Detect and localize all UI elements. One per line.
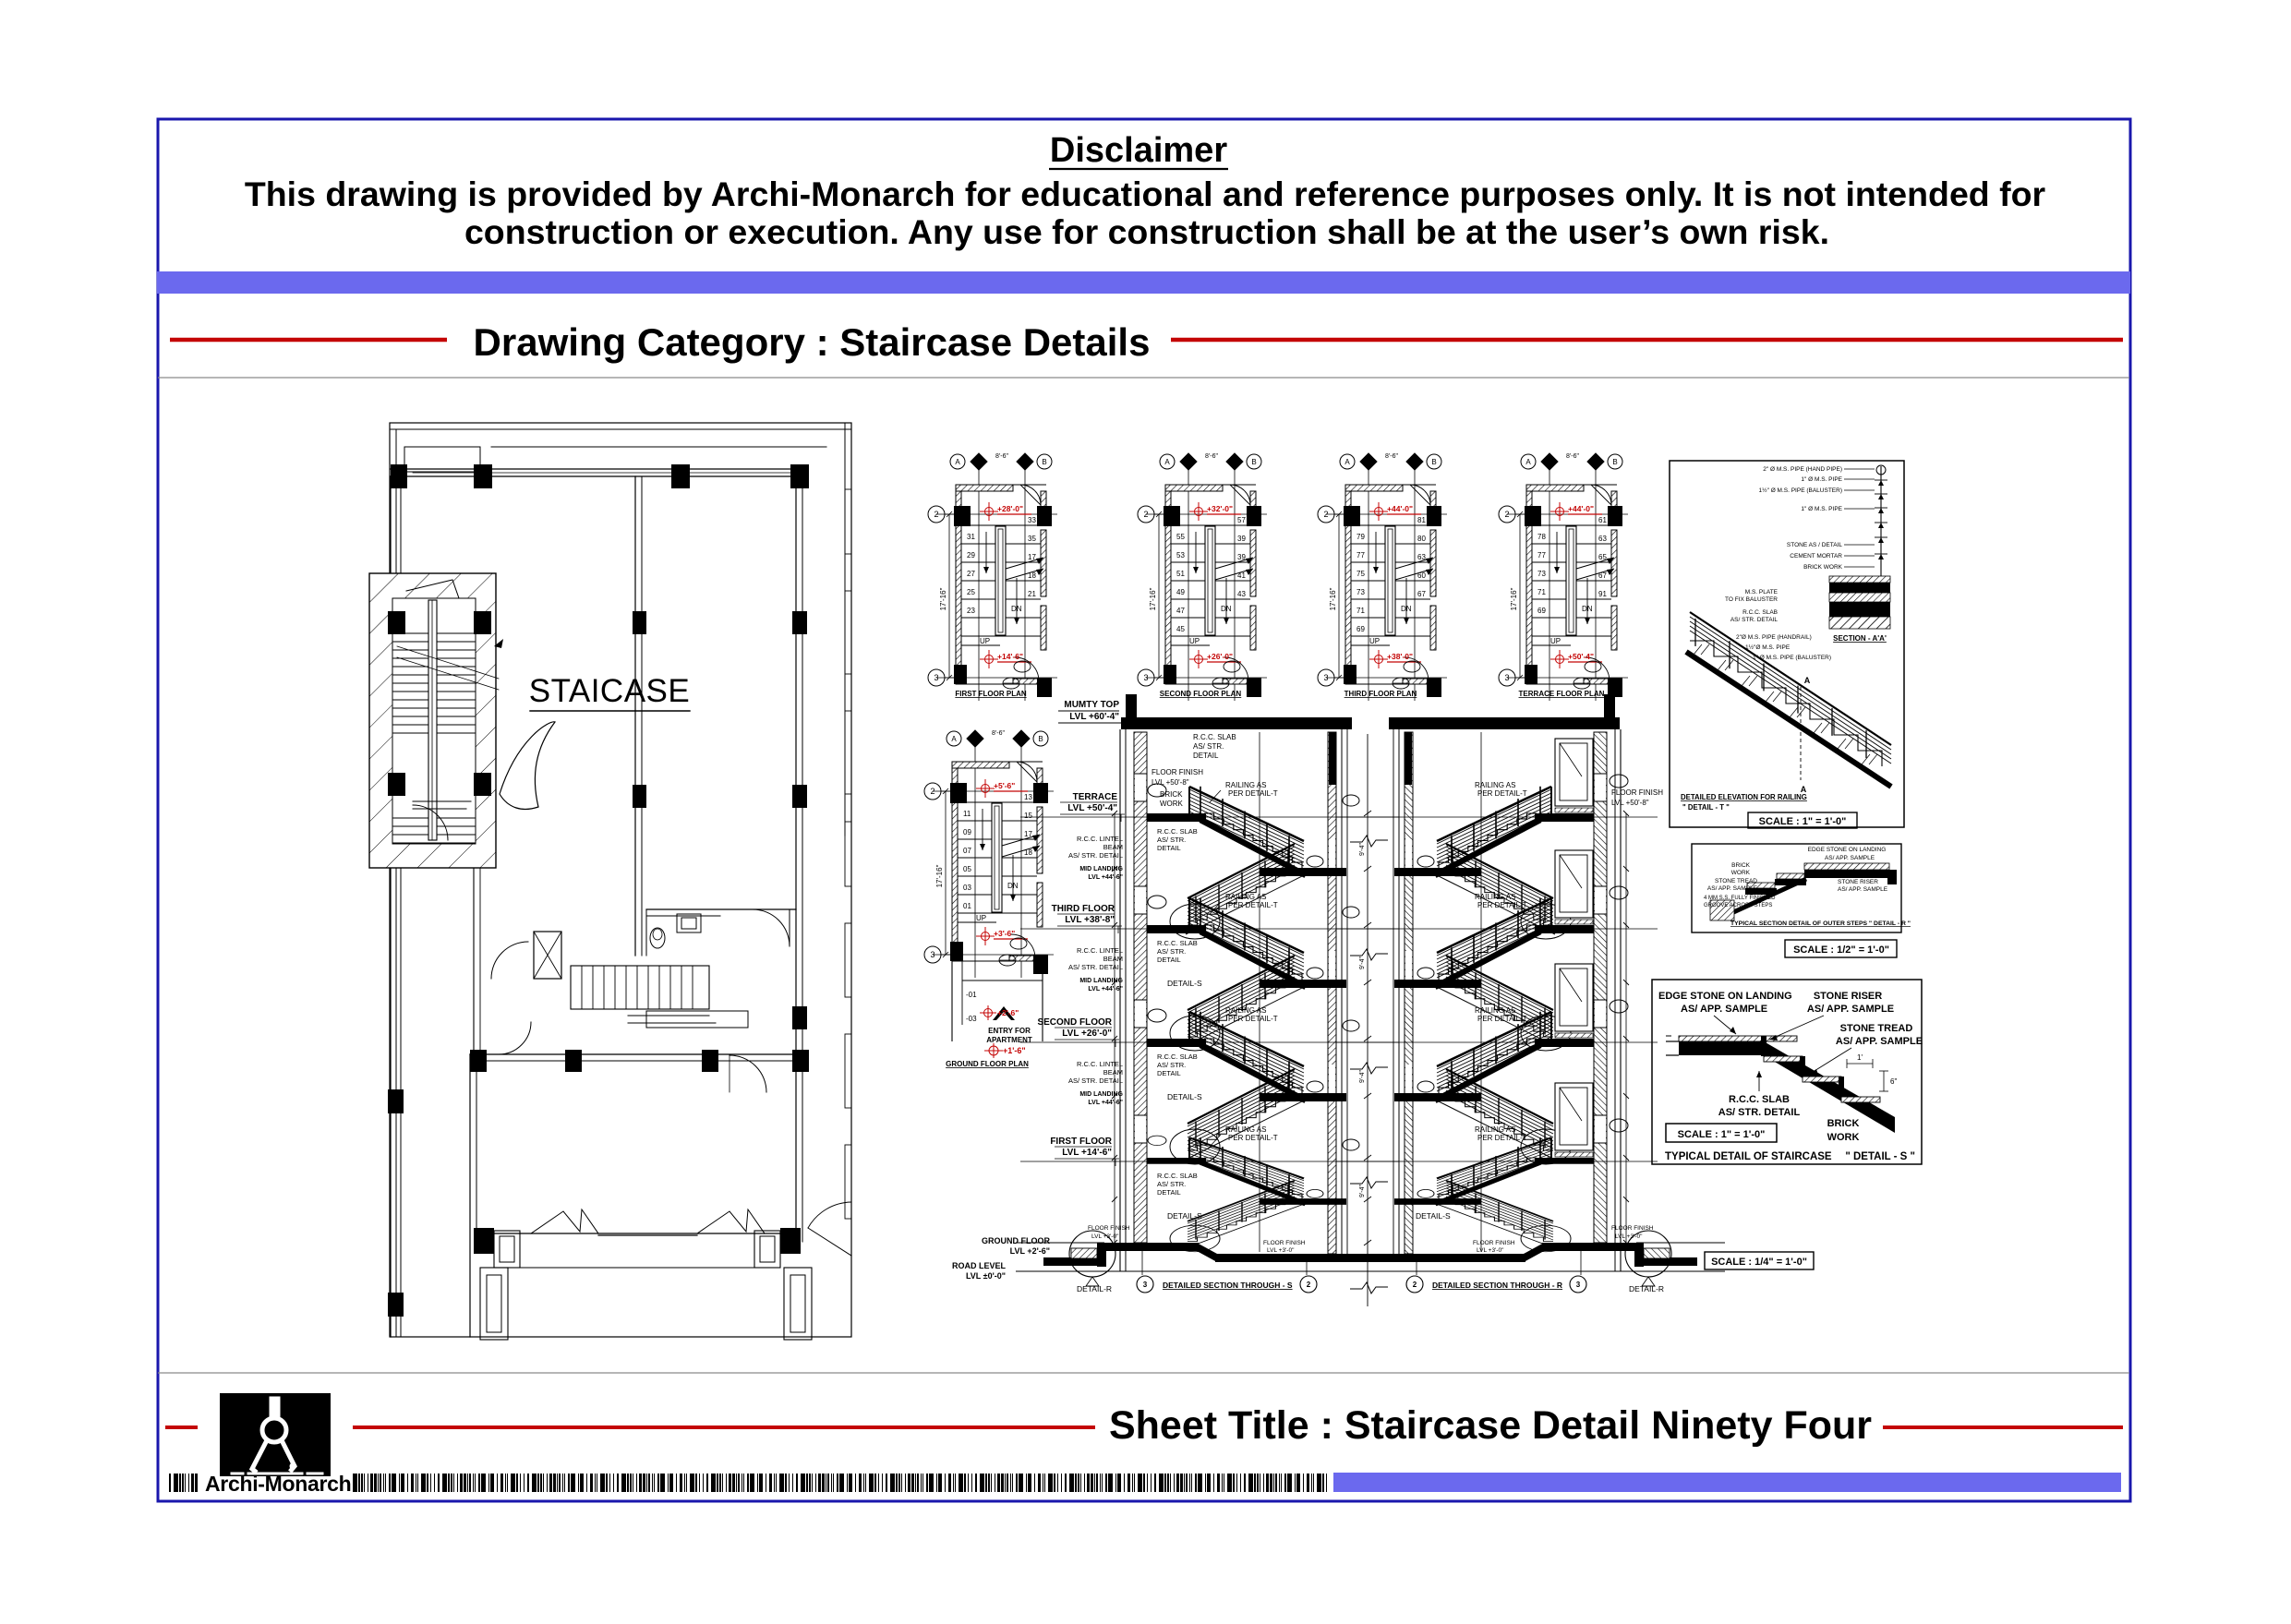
svg-text:LVL +44'-6": LVL +44'-6" bbox=[1088, 1100, 1123, 1106]
svg-text:MID LANDING: MID LANDING bbox=[1079, 978, 1123, 984]
svg-text:4 MM S.S. FULLY FINISHED: 4 MM S.S. FULLY FINISHED bbox=[1704, 896, 1776, 901]
svg-text:-03: -03 bbox=[966, 1015, 977, 1023]
svg-text:BRICK: BRICK bbox=[1827, 1118, 1860, 1129]
svg-text:01: 01 bbox=[963, 902, 971, 910]
svg-text:1½" Ø M.S. PIPE (BALUSTER): 1½" Ø M.S. PIPE (BALUSTER) bbox=[1759, 487, 1842, 494]
svg-text:R.C.C. SLAB: R.C.C. SLAB bbox=[1157, 827, 1198, 836]
svg-text:R.C.C. LINTEL: R.C.C. LINTEL bbox=[1077, 946, 1123, 955]
svg-text:8'-6": 8'-6" bbox=[995, 453, 1008, 460]
svg-text:60: 60 bbox=[1417, 571, 1426, 580]
svg-text:" DETAIL - S ": " DETAIL - S " bbox=[1845, 1151, 1915, 1162]
svg-text:2: 2 bbox=[1413, 1281, 1417, 1289]
svg-text:UP: UP bbox=[1189, 637, 1200, 645]
svg-text:GROUND FLOOR: GROUND FLOOR bbox=[982, 1236, 1050, 1245]
svg-text:LVL +50'-8": LVL +50'-8" bbox=[1611, 799, 1649, 807]
svg-text:2: 2 bbox=[934, 510, 938, 519]
svg-text:ROAD LEVEL: ROAD LEVEL bbox=[952, 1261, 1007, 1270]
svg-text:Archi-Monarch: Archi-Monarch bbox=[205, 1472, 351, 1496]
svg-text:DN: DN bbox=[1221, 605, 1232, 613]
svg-text:AS/ STR.: AS/ STR. bbox=[1157, 836, 1186, 844]
svg-text:R.C.C. SLAB: R.C.C. SLAB bbox=[1157, 939, 1198, 947]
svg-text:63: 63 bbox=[1598, 535, 1607, 543]
svg-text:RAILING AS: RAILING AS bbox=[1475, 781, 1515, 789]
svg-text:Drawing Category : Staircase D: Drawing Category : Staircase Details bbox=[474, 320, 1151, 364]
svg-text:SECOND FLOOR: SECOND FLOOR bbox=[1037, 1017, 1112, 1028]
svg-text:73: 73 bbox=[1357, 588, 1365, 596]
svg-text:39: 39 bbox=[1237, 553, 1246, 561]
svg-text:SECOND FLOOR PLAN: SECOND FLOOR PLAN bbox=[1160, 690, 1242, 698]
svg-text:A: A bbox=[955, 458, 960, 466]
svg-text:+14'-6": +14'-6" bbox=[997, 652, 1023, 661]
svg-text:LVL +3'-0": LVL +3'-0" bbox=[1091, 1233, 1119, 1240]
svg-text:17'-16": 17'-16" bbox=[939, 587, 947, 610]
svg-text:1': 1' bbox=[1857, 1053, 1863, 1062]
svg-text:MID LANDING: MID LANDING bbox=[1079, 866, 1123, 872]
svg-text:PER DETAIL-T: PER DETAIL-T bbox=[1477, 789, 1527, 798]
svg-text:PER DETAIL-T: PER DETAIL-T bbox=[1228, 1015, 1278, 1023]
svg-text:1½"Ø M.S. PIPE: 1½"Ø M.S. PIPE bbox=[1745, 644, 1791, 651]
svg-text:+5'-6": +5'-6" bbox=[994, 781, 1015, 790]
svg-text:RAILING AS: RAILING AS bbox=[1225, 1006, 1266, 1015]
svg-text:51: 51 bbox=[1176, 570, 1185, 578]
svg-text:A: A bbox=[1164, 458, 1170, 466]
svg-text:FLOOR FINISH: FLOOR FINISH bbox=[1088, 1225, 1130, 1232]
svg-text:2: 2 bbox=[1143, 510, 1148, 519]
svg-text:+32'-0": +32'-0" bbox=[1207, 504, 1233, 513]
svg-text:+2'-6": +2'-6" bbox=[997, 1008, 1019, 1017]
svg-text:69: 69 bbox=[1537, 607, 1546, 615]
svg-text:AS/ STR. DETAIL: AS/ STR. DETAIL bbox=[1068, 1077, 1123, 1085]
svg-text:DN: DN bbox=[1007, 882, 1019, 890]
svg-text:STONE TREAD: STONE TREAD bbox=[1840, 1023, 1913, 1034]
svg-text:DETAIL: DETAIL bbox=[1157, 956, 1181, 964]
svg-text:71: 71 bbox=[1537, 588, 1546, 596]
svg-text:-01: -01 bbox=[966, 991, 977, 999]
svg-text:09: 09 bbox=[963, 828, 971, 836]
svg-text:TERRACE: TERRACE bbox=[1073, 792, 1118, 802]
svg-text:MID LANDING: MID LANDING bbox=[1079, 1091, 1123, 1098]
svg-text:73: 73 bbox=[1537, 570, 1546, 578]
svg-text:LVL +50'-4": LVL +50'-4" bbox=[1067, 803, 1117, 813]
svg-text:AS/ STR.: AS/ STR. bbox=[1157, 947, 1186, 956]
svg-text:RAILING AS: RAILING AS bbox=[1475, 893, 1515, 901]
svg-text:AS/ APP. SAMPLE: AS/ APP. SAMPLE bbox=[1836, 1036, 1923, 1047]
svg-text:BEAM: BEAM bbox=[1103, 843, 1123, 851]
svg-text:FIRST FLOOR: FIRST FLOOR bbox=[1050, 1137, 1112, 1147]
svg-text:13: 13 bbox=[1024, 793, 1032, 801]
svg-text:31: 31 bbox=[967, 533, 975, 541]
svg-text:DETAIL: DETAIL bbox=[1157, 844, 1181, 852]
svg-text:DETAIL-R: DETAIL-R bbox=[1629, 1284, 1664, 1293]
svg-text:B: B bbox=[1042, 458, 1046, 466]
svg-text:49: 49 bbox=[1176, 588, 1185, 596]
svg-text:BRICK: BRICK bbox=[1160, 790, 1183, 799]
svg-text:39: 39 bbox=[1237, 535, 1246, 543]
svg-text:AS/ APP. SAMPLE: AS/ APP. SAMPLE bbox=[1681, 1004, 1767, 1015]
svg-text:R.C.C. SLAB: R.C.C. SLAB bbox=[1742, 609, 1778, 616]
svg-text:3: 3 bbox=[934, 673, 938, 682]
svg-text:DETAILED SECTION THROUGH - R: DETAILED SECTION THROUGH - R bbox=[1432, 1281, 1562, 1290]
svg-text:AS/ APP. SAMPLE: AS/ APP. SAMPLE bbox=[1825, 855, 1875, 861]
svg-text:" DETAIL - T ": " DETAIL - T " bbox=[1682, 803, 1730, 812]
svg-text:+44'-0": +44'-0" bbox=[1568, 504, 1594, 513]
svg-text:THIRD FLOOR: THIRD FLOOR bbox=[1052, 904, 1115, 914]
svg-text:AS/ STR. DETAIL: AS/ STR. DETAIL bbox=[1068, 851, 1123, 860]
svg-text:71: 71 bbox=[1357, 607, 1365, 615]
svg-text:SCALE : 1/4" = 1'-0": SCALE : 1/4" = 1'-0" bbox=[1711, 1257, 1807, 1268]
svg-text:+26'-0": +26'-0" bbox=[1207, 652, 1233, 661]
svg-text:9'-4": 9'-4" bbox=[1359, 1185, 1366, 1197]
svg-text:DETAIL: DETAIL bbox=[1157, 1069, 1181, 1077]
svg-text:17'-16": 17'-16" bbox=[1510, 587, 1518, 610]
svg-text:THIRD FLOOR PLAN: THIRD FLOOR PLAN bbox=[1344, 690, 1417, 698]
svg-text:BRICK WORK: BRICK WORK bbox=[1803, 564, 1843, 571]
svg-text:2" Ø M.S. PIPE (HAND PIPE): 2" Ø M.S. PIPE (HAND PIPE) bbox=[1763, 466, 1842, 473]
svg-text:AS/ APP. SAMPLE: AS/ APP. SAMPLE bbox=[1807, 1004, 1894, 1015]
svg-text:45: 45 bbox=[1176, 625, 1185, 633]
svg-text:DN: DN bbox=[1011, 605, 1022, 613]
svg-text:21: 21 bbox=[1028, 590, 1036, 598]
svg-text:AS/ STR. DETAIL: AS/ STR. DETAIL bbox=[1718, 1107, 1801, 1118]
svg-text:R.C.C. SLAB: R.C.C. SLAB bbox=[1157, 1172, 1198, 1180]
svg-text:DETAIL-S: DETAIL-S bbox=[1416, 1211, 1451, 1221]
svg-text:SECTION - A'A': SECTION - A'A' bbox=[1833, 634, 1887, 643]
svg-text:17'-16": 17'-16" bbox=[935, 864, 944, 887]
svg-text:R.C.C. SLAB: R.C.C. SLAB bbox=[1729, 1094, 1790, 1105]
svg-text:27: 27 bbox=[967, 570, 975, 578]
svg-text:LVL +3'-0": LVL +3'-0" bbox=[1477, 1247, 1504, 1254]
svg-text:UP: UP bbox=[980, 637, 990, 645]
svg-text:TYPICAL SECTION DETAIL OF OUTE: TYPICAL SECTION DETAIL OF OUTER STEPS " … bbox=[1730, 920, 1911, 927]
svg-text:PER DETAIL-T: PER DETAIL-T bbox=[1228, 1134, 1278, 1142]
svg-text:LVL +50'-8": LVL +50'-8" bbox=[1152, 778, 1189, 787]
svg-text:23: 23 bbox=[967, 607, 975, 615]
svg-text:AS/ STR.: AS/ STR. bbox=[1157, 1061, 1186, 1069]
svg-text:3: 3 bbox=[1143, 1281, 1148, 1289]
svg-text:18: 18 bbox=[1024, 848, 1032, 857]
svg-text:PER DETAIL-T: PER DETAIL-T bbox=[1477, 1134, 1527, 1142]
svg-text:A: A bbox=[1804, 676, 1811, 685]
svg-text:DETAIL-S: DETAIL-S bbox=[1416, 979, 1451, 988]
svg-text:67: 67 bbox=[1417, 590, 1426, 598]
svg-text:15: 15 bbox=[1024, 812, 1032, 820]
svg-text:53: 53 bbox=[1176, 551, 1185, 559]
svg-text:18: 18 bbox=[1028, 571, 1036, 580]
svg-text:05: 05 bbox=[963, 865, 971, 873]
svg-text:+44'-0": +44'-0" bbox=[1387, 504, 1413, 513]
svg-text:2: 2 bbox=[1307, 1281, 1311, 1289]
svg-text:77: 77 bbox=[1537, 551, 1546, 559]
svg-text:55: 55 bbox=[1176, 533, 1185, 541]
svg-text:03: 03 bbox=[963, 884, 971, 892]
svg-text:UP: UP bbox=[976, 914, 986, 922]
svg-text:MUMTY TOP: MUMTY TOP bbox=[1064, 700, 1119, 710]
svg-text:3: 3 bbox=[1143, 673, 1148, 682]
svg-text:DETAIL: DETAIL bbox=[1193, 752, 1219, 760]
svg-text:77: 77 bbox=[1357, 551, 1365, 559]
svg-text:DETAIL-R: DETAIL-R bbox=[1077, 1284, 1112, 1293]
svg-text:B: B bbox=[1612, 458, 1617, 466]
svg-text:69: 69 bbox=[1357, 625, 1365, 633]
svg-text:+38'-0": +38'-0" bbox=[1387, 652, 1413, 661]
svg-text:CEMENT MORTAR: CEMENT MORTAR bbox=[1790, 553, 1842, 559]
svg-text:A: A bbox=[1525, 458, 1531, 466]
svg-text:FIRST FLOOR PLAN: FIRST FLOOR PLAN bbox=[955, 690, 1027, 698]
svg-text:8'-6": 8'-6" bbox=[1566, 453, 1579, 460]
svg-text:8'-6": 8'-6" bbox=[992, 730, 1005, 737]
svg-text:STAICASE: STAICASE bbox=[529, 673, 691, 709]
svg-text:61: 61 bbox=[1598, 516, 1607, 524]
svg-text:A: A bbox=[951, 735, 957, 743]
svg-text:3: 3 bbox=[930, 950, 934, 959]
svg-text:DN: DN bbox=[1401, 605, 1412, 613]
svg-text:LVL ±0'-0": LVL ±0'-0" bbox=[966, 1271, 1006, 1281]
svg-text:3: 3 bbox=[1323, 673, 1328, 682]
svg-text:TERRACE FLOOR PLAN: TERRACE FLOOR PLAN bbox=[1519, 690, 1605, 698]
svg-text:43: 43 bbox=[1237, 590, 1246, 598]
svg-text:+28'-0": +28'-0" bbox=[997, 504, 1023, 513]
svg-text:STONE RISER: STONE RISER bbox=[1814, 991, 1882, 1002]
svg-text:B: B bbox=[1038, 735, 1043, 743]
svg-text:BEAM: BEAM bbox=[1103, 1068, 1123, 1077]
svg-text:APARTMENT: APARTMENT bbox=[986, 1036, 1032, 1044]
svg-text:FLOOR FINISH: FLOOR FINISH bbox=[1611, 1225, 1654, 1232]
svg-text:3: 3 bbox=[1504, 673, 1509, 682]
svg-text:LVL +3'-0": LVL +3'-0" bbox=[1615, 1233, 1643, 1240]
svg-text:LVL +3'-0": LVL +3'-0" bbox=[1267, 1247, 1295, 1254]
svg-text:+50'-4": +50'-4" bbox=[1568, 652, 1594, 661]
svg-text:PER DETAIL-T: PER DETAIL-T bbox=[1228, 789, 1278, 798]
svg-text:75: 75 bbox=[1357, 570, 1365, 578]
svg-text:WORK: WORK bbox=[1160, 800, 1184, 808]
svg-text:Sheet Title : Staircase Detail: Sheet Title : Staircase Detail Ninety Fo… bbox=[1109, 1403, 1872, 1448]
svg-text:PER DETAIL-T: PER DETAIL-T bbox=[1477, 901, 1527, 909]
svg-text:FLOOR FINISH: FLOOR FINISH bbox=[1263, 1240, 1306, 1246]
svg-text:FLOOR FINISH: FLOOR FINISH bbox=[1611, 788, 1663, 797]
svg-text:TO FIX BALUSTER: TO FIX BALUSTER bbox=[1725, 596, 1778, 603]
svg-text:DETAIL: DETAIL bbox=[1157, 1188, 1181, 1197]
svg-text:AS/ STR.: AS/ STR. bbox=[1193, 742, 1224, 751]
svg-text:LVL +14'-6": LVL +14'-6" bbox=[1062, 1148, 1112, 1158]
svg-text:FLOOR FINISH: FLOOR FINISH bbox=[1152, 768, 1203, 776]
svg-text:17'-16": 17'-16" bbox=[1329, 587, 1337, 610]
svg-text:This drawing is provided by Ar: This drawing is provided by Archi-Monarc… bbox=[245, 174, 2046, 213]
svg-text:construction or execution. Any: construction or execution. Any use for c… bbox=[464, 212, 1829, 251]
svg-text:1'-2": 1'-2" bbox=[1838, 872, 1849, 877]
svg-text:79: 79 bbox=[1357, 533, 1365, 541]
svg-text:2: 2 bbox=[1323, 510, 1328, 519]
svg-text:63: 63 bbox=[1417, 553, 1426, 561]
svg-text:M.S. PLATE: M.S. PLATE bbox=[1745, 589, 1779, 595]
svg-text:FLOOR FINISH: FLOOR FINISH bbox=[1473, 1240, 1515, 1246]
svg-text:17: 17 bbox=[1028, 553, 1036, 561]
svg-text:33: 33 bbox=[1028, 516, 1036, 524]
svg-text:2: 2 bbox=[930, 787, 934, 796]
svg-text:9'-4": 9'-4" bbox=[1359, 1070, 1366, 1083]
svg-text:3: 3 bbox=[1576, 1281, 1581, 1289]
svg-text:RAILING AS: RAILING AS bbox=[1225, 1125, 1266, 1134]
svg-text:TYPICAL DETAIL OF STAIRCASE: TYPICAL DETAIL OF STAIRCASE bbox=[1665, 1151, 1832, 1162]
svg-text:WORK: WORK bbox=[1827, 1132, 1860, 1143]
svg-text:B: B bbox=[1431, 458, 1436, 466]
svg-text:GROOVE ACROSS STEPS: GROOVE ACROSS STEPS bbox=[1704, 903, 1772, 908]
svg-text:LVL +38'-8": LVL +38'-8" bbox=[1065, 915, 1115, 925]
svg-text:R.C.C. LINTEL: R.C.C. LINTEL bbox=[1077, 835, 1123, 843]
svg-text:WORK: WORK bbox=[1731, 870, 1751, 876]
svg-text:SCALE : 1/2" = 1'-0": SCALE : 1/2" = 1'-0" bbox=[1793, 944, 1889, 956]
svg-text:47: 47 bbox=[1176, 607, 1185, 615]
svg-text:STONE RISER: STONE RISER bbox=[1838, 879, 1878, 885]
svg-text:DETAIL-S: DETAIL-S bbox=[1416, 1092, 1451, 1101]
svg-text:8'-6": 8'-6" bbox=[1205, 453, 1218, 460]
svg-text:RAILING AS: RAILING AS bbox=[1225, 781, 1266, 789]
svg-text:GROUND FLOOR PLAN: GROUND FLOOR PLAN bbox=[946, 1060, 1029, 1068]
svg-text:2"Ø M.S. PIPE (HANDRAIL): 2"Ø M.S. PIPE (HANDRAIL) bbox=[1736, 634, 1812, 641]
svg-text:AS/ STR. DETAIL: AS/ STR. DETAIL bbox=[1730, 617, 1779, 623]
svg-text:SCALE : 1" = 1'-0": SCALE : 1" = 1'-0" bbox=[1759, 816, 1847, 827]
svg-text:91: 91 bbox=[1598, 590, 1607, 598]
svg-text:R.C.C. LINTEL: R.C.C. LINTEL bbox=[1077, 1060, 1123, 1068]
svg-text:BRICK: BRICK bbox=[1731, 862, 1751, 869]
svg-text:A: A bbox=[1344, 458, 1350, 466]
svg-text:Disclaimer: Disclaimer bbox=[1050, 131, 1227, 170]
svg-text:41: 41 bbox=[1237, 571, 1246, 580]
svg-text:ENTRY FOR: ENTRY FOR bbox=[988, 1027, 1031, 1035]
svg-text:8'-6": 8'-6" bbox=[1385, 453, 1398, 460]
svg-text:AS/ APP. SAMPLE: AS/ APP. SAMPLE bbox=[1838, 886, 1888, 893]
svg-text:RAILING AS: RAILING AS bbox=[1475, 1125, 1515, 1134]
svg-text:PER DETAIL-T: PER DETAIL-T bbox=[1477, 1015, 1527, 1023]
svg-text:81: 81 bbox=[1417, 516, 1426, 524]
svg-text:DETAIL-S: DETAIL-S bbox=[1167, 979, 1202, 988]
svg-text:DETAIL-S: DETAIL-S bbox=[1167, 1211, 1202, 1221]
svg-text:LVL +44'-6": LVL +44'-6" bbox=[1088, 874, 1123, 881]
svg-text:AS/ STR. DETAIL: AS/ STR. DETAIL bbox=[1068, 963, 1123, 971]
svg-text:BEAM: BEAM bbox=[1103, 955, 1123, 963]
svg-text:DETAILED SECTION THROUGH - S: DETAILED SECTION THROUGH - S bbox=[1163, 1281, 1293, 1290]
svg-text:9'-4": 9'-4" bbox=[1359, 956, 1366, 969]
svg-text:07: 07 bbox=[963, 847, 971, 855]
svg-text:67: 67 bbox=[1598, 571, 1607, 580]
svg-text:AS/ APP. SAMPLE: AS/ APP. SAMPLE bbox=[1707, 885, 1758, 892]
svg-text:35: 35 bbox=[1028, 535, 1036, 543]
svg-text:R.C.C. SLAB: R.C.C. SLAB bbox=[1193, 733, 1236, 741]
svg-text:1" Ø M.S. PIPE: 1" Ø M.S. PIPE bbox=[1801, 506, 1842, 512]
svg-text:RAILING AS: RAILING AS bbox=[1225, 893, 1266, 901]
svg-text:6": 6" bbox=[1890, 1077, 1897, 1086]
svg-text:DN: DN bbox=[1582, 605, 1593, 613]
svg-text:+1'-6": +1'-6" bbox=[1003, 1046, 1026, 1055]
svg-text:1" Ø M.S. PIPE (BALUSTER): 1" Ø M.S. PIPE (BALUSTER) bbox=[1753, 655, 1831, 661]
svg-text:17'-16": 17'-16" bbox=[1149, 587, 1157, 610]
svg-text:57: 57 bbox=[1237, 516, 1246, 524]
svg-text:SCALE : 1" = 1'-0": SCALE : 1" = 1'-0" bbox=[1678, 1129, 1766, 1140]
svg-text:1" Ø M.S. PIPE: 1" Ø M.S. PIPE bbox=[1801, 476, 1842, 483]
svg-text:65: 65 bbox=[1598, 553, 1607, 561]
svg-text:25: 25 bbox=[967, 588, 975, 596]
svg-text:R.C.C. SLAB: R.C.C. SLAB bbox=[1157, 1053, 1198, 1061]
svg-text:STONE TREAD: STONE TREAD bbox=[1715, 878, 1757, 884]
svg-text:29: 29 bbox=[967, 551, 975, 559]
svg-text:2: 2 bbox=[1504, 510, 1509, 519]
svg-text:B: B bbox=[1251, 458, 1256, 466]
svg-text:AS/ STR.: AS/ STR. bbox=[1157, 1180, 1186, 1188]
svg-text:UP: UP bbox=[1369, 637, 1380, 645]
svg-text:LVL +60'-4": LVL +60'-4" bbox=[1069, 712, 1119, 722]
svg-text:EDGE STONE ON LANDING: EDGE STONE ON LANDING bbox=[1658, 991, 1792, 1002]
svg-text:9'-4": 9'-4" bbox=[1359, 843, 1366, 856]
svg-text:RAILING AS: RAILING AS bbox=[1475, 1006, 1515, 1015]
svg-text:EDGE STONE ON LANDING: EDGE STONE ON LANDING bbox=[1808, 847, 1887, 853]
svg-text:80: 80 bbox=[1417, 535, 1426, 543]
svg-text:STONE AS / DETAIL: STONE AS / DETAIL bbox=[1787, 542, 1842, 548]
svg-text:LVL +44'-6": LVL +44'-6" bbox=[1088, 986, 1123, 992]
svg-text:78: 78 bbox=[1537, 533, 1546, 541]
svg-text:LVL +26'-0": LVL +26'-0" bbox=[1062, 1029, 1112, 1039]
svg-text:UP: UP bbox=[1550, 637, 1561, 645]
svg-text:17: 17 bbox=[1024, 830, 1032, 838]
svg-text:+3'-6": +3'-6" bbox=[994, 929, 1015, 938]
svg-text:DETAILED ELEVATION FOR RAILING: DETAILED ELEVATION FOR RAILING bbox=[1681, 793, 1807, 801]
svg-text:11: 11 bbox=[963, 810, 971, 818]
svg-text:DETAIL-S: DETAIL-S bbox=[1167, 1092, 1202, 1101]
svg-text:LVL +2'-6": LVL +2'-6" bbox=[1010, 1246, 1050, 1256]
svg-text:PER DETAIL-T: PER DETAIL-T bbox=[1228, 901, 1278, 909]
